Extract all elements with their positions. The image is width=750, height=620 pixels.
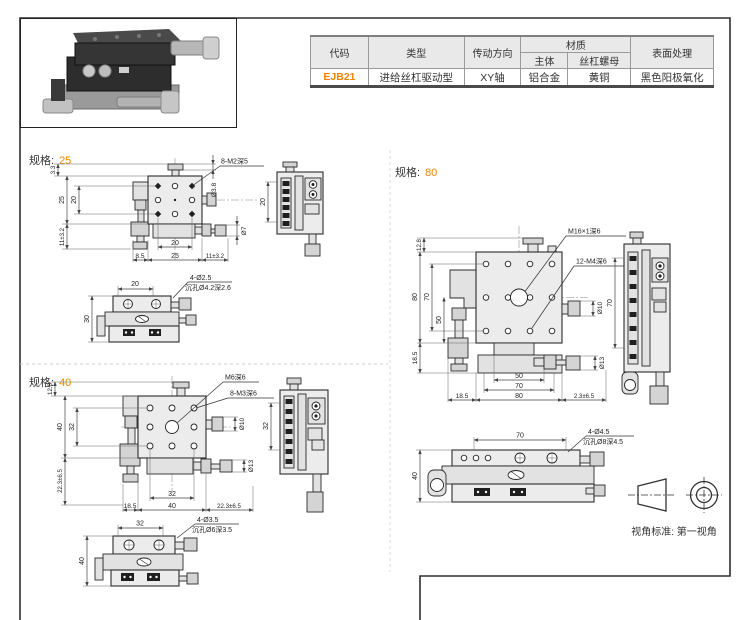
y-knob-cap <box>161 91 179 113</box>
spec-80-drawing: M16×1深6 12-M4深6 12.8 80 70 50 18.5 5 <box>390 158 740 526</box>
spec-40-drawing: M6深6 8-M3深6 12.8 40 32 22.3±6.5 32 <box>25 368 370 614</box>
dim-label: 32 <box>168 491 176 498</box>
spec-25-drawing: 8-M2深5 3.3 25 20 11±3.2 20 8 <box>25 148 370 362</box>
counterbore-note-2: 沉孔Ø6深3.5 <box>192 525 232 534</box>
spec-section-40: 规格:40 M6深6 <box>25 368 370 614</box>
dim-label: 20 <box>71 196 78 204</box>
dim-label: Ø13 <box>248 459 255 472</box>
dim-label: 18.5 <box>412 351 419 364</box>
dim-label: 11±3.2 <box>59 227 66 246</box>
projection-standard: 视角标准: 第一视角 <box>610 476 738 538</box>
side-view-25: 20 <box>260 162 323 256</box>
first-angle-projection-icon <box>610 476 738 516</box>
dim-label: 8.5 <box>135 253 144 260</box>
front-view-25: 20 30 4-Ø2.5 沉孔Ø4.2深2.6 <box>84 275 232 342</box>
dim-label: Ø7 <box>241 226 248 235</box>
top-screw <box>115 35 119 39</box>
dim-label: 32 <box>69 423 76 431</box>
cell-direction: XY轴 <box>464 69 521 87</box>
cell-code: EJB21 <box>311 69 369 87</box>
counterbore-note-1: 4-Ø3.5 <box>197 517 219 524</box>
thread-note-80: 12-M4深6 <box>576 257 607 266</box>
spec-table: 代码 类型 传动方向 材质 表面处理 主体 丝杠螺母 EJB21 进给丝杠驱动型… <box>310 35 714 88</box>
thread-note-40: 8-M3深6 <box>230 389 257 398</box>
dim-label: 30 <box>84 315 91 323</box>
top-screw <box>137 34 141 38</box>
header-code: 代码 <box>311 36 369 69</box>
front-bracket <box>51 79 65 101</box>
front-slot <box>119 67 129 73</box>
dim-label: 12.8 <box>47 382 54 394</box>
dim-label: 18.5 <box>456 393 469 400</box>
dim-label: 25 <box>59 196 66 204</box>
dim-label: 22.3±6.5 <box>217 503 241 510</box>
header-material-nut: 丝杠螺母 <box>568 53 631 69</box>
dim-label: 50 <box>436 316 443 324</box>
y-shaft <box>117 97 165 107</box>
dim-label: 80 <box>412 293 419 301</box>
dim-label: 12.8 <box>416 238 423 250</box>
dim-label: 2.3±6.5 <box>574 393 595 400</box>
counterbore-note-1: 4-Ø4.5 <box>588 429 610 436</box>
cell-material-nut: 黄铜 <box>568 69 631 87</box>
side-view-80: 70 <box>607 232 670 404</box>
product-photo <box>21 19 235 126</box>
dim-label: 22.3±6.5 <box>57 469 64 493</box>
dim-label: 70 <box>424 293 431 301</box>
dim-label: 32 <box>136 521 144 528</box>
plan-view-80: M16×1深6 12-M4深6 <box>448 226 630 373</box>
dim-label: 20 <box>171 240 179 247</box>
dim-label: 70 <box>607 299 614 307</box>
dim-label: Ø10 <box>597 301 604 314</box>
dim-label: 20 <box>260 198 267 206</box>
thread-note-25: 8-M2深5 <box>221 157 248 166</box>
dim-label: 18.5 <box>124 503 137 510</box>
header-material: 材质 <box>521 36 631 53</box>
dim-label: 20 <box>131 281 139 288</box>
dim-label: 40 <box>57 423 64 431</box>
spec-section-25: 规格:25 <box>25 148 370 362</box>
header-direction: 传动方向 <box>464 36 521 69</box>
dim-label: 40 <box>412 472 419 480</box>
x-knob-cap <box>203 37 219 59</box>
x-knob-shaft <box>171 41 205 55</box>
dim-label: Ø10 <box>239 417 246 430</box>
dim-label: 3.3 <box>50 165 57 174</box>
counterbore-note-1: 4-Ø2.5 <box>190 275 212 282</box>
projection-label: 视角标准: 第一视角 <box>610 523 738 538</box>
dim-label: 40 <box>79 557 86 565</box>
cell-surface: 黑色阳极氧化 <box>631 69 714 87</box>
dim-label: 50 <box>515 373 523 380</box>
dim-label: 70 <box>515 383 523 390</box>
counterbore-note-2: 沉孔Ø8深4.5 <box>583 437 623 446</box>
product-photo-box <box>20 18 237 128</box>
front-view-80: 70 40 4-Ø4.5 沉孔Ø8深4.5 <box>412 429 634 502</box>
spec-section-80: 规格:80 <box>390 158 740 526</box>
dim-label: 32 <box>263 422 270 430</box>
plan-view-40: M6深6 8-M3深6 <box>120 373 274 493</box>
stage-top-block <box>75 43 175 65</box>
front-view-40: 32 40 4-Ø3.5 沉孔Ø6深3.5 <box>79 517 239 586</box>
center-note-40: M6深6 <box>225 373 246 382</box>
cell-type: 进给丝杠驱动型 <box>368 69 464 87</box>
top-screw <box>157 33 161 37</box>
center-note-80: M16×1深6 <box>568 227 601 236</box>
header-material-body: 主体 <box>521 53 568 69</box>
front-screw <box>83 65 95 77</box>
dim-label: Ø3.8 <box>211 183 218 198</box>
counterbore-note-2: 沉孔Ø4.2深2.6 <box>185 283 231 292</box>
cell-material-body: 铝合金 <box>521 69 568 87</box>
dim-label: 40 <box>168 503 176 510</box>
front-screw <box>99 65 111 77</box>
plan-view-25: 8-M2深5 <box>131 157 264 261</box>
header-type: 类型 <box>368 36 464 69</box>
dim-label: 25 <box>171 253 179 260</box>
header-surface: 表面处理 <box>631 36 714 69</box>
dim-label: 11±3.2 <box>206 253 225 260</box>
top-screw <box>93 37 97 41</box>
dim-label: 70 <box>516 433 524 440</box>
front-knob <box>43 99 73 113</box>
table-row: EJB21 进给丝杠驱动型 XY轴 铝合金 黄铜 黑色阳极氧化 <box>311 69 714 87</box>
dim-label: 80 <box>515 393 523 400</box>
dim-label: Ø13 <box>599 356 606 369</box>
